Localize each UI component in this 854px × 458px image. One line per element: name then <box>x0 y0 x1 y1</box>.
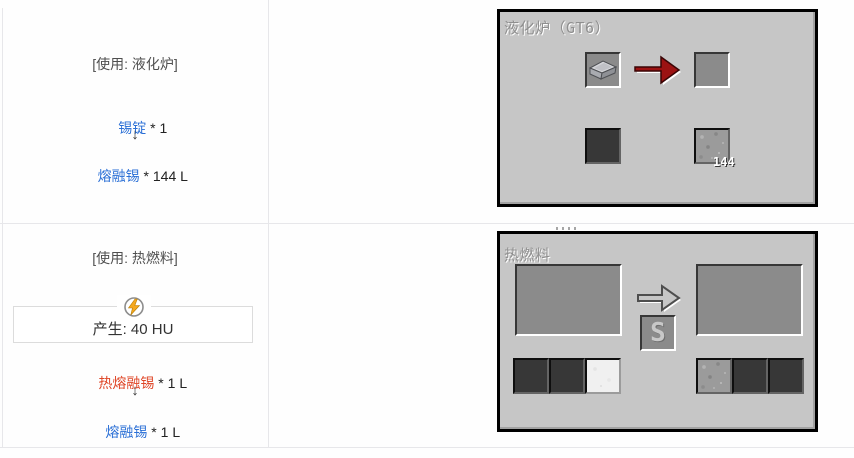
s-mode-icon: S <box>640 315 676 351</box>
fluid-amount-label: 144 <box>713 155 735 169</box>
lightning-icon <box>117 295 151 318</box>
input-item-slot <box>585 52 621 88</box>
clipped-pixels-decoration <box>556 227 580 230</box>
down-arrow-icon: ↓ <box>2 382 268 399</box>
input-slot-1 <box>513 358 549 394</box>
red-right-arrow-icon <box>634 55 682 85</box>
usage-label: [使用: 热燃料] <box>2 248 268 268</box>
output-fluid-link[interactable]: 熔融锡 <box>105 424 147 440</box>
input-slot-3 <box>585 358 621 394</box>
output-line: 熔融锡 * 1 L <box>2 406 268 458</box>
output-tank-display <box>696 264 803 336</box>
recipe-screenshot-hot-fuel[interactable]: 热燃料 S <box>497 231 818 432</box>
input-slot-2 <box>549 358 585 394</box>
input-tank-display <box>515 264 622 336</box>
down-arrow-icon: ↓ <box>2 126 268 143</box>
output-line: 熔融锡 * 144 L <box>2 150 268 202</box>
output-fluid-link[interactable]: 熔融锡 <box>98 168 140 184</box>
gui-title: 液化炉（GT6） <box>504 17 610 38</box>
recipe-screenshot-liquifier[interactable]: 液化炉（GT6） 144 <box>497 9 818 207</box>
usage-label: [使用: 液化炉] <box>2 54 268 74</box>
energy-output-label: 产生: 40 HU <box>14 318 252 339</box>
output-slot-2 <box>732 358 768 394</box>
output-amount: * 1 L <box>147 424 180 440</box>
tin-ingot-icon <box>588 59 618 81</box>
output-slot-3 <box>768 358 804 394</box>
output-amount: * 144 L <box>140 168 188 184</box>
output-slot-1 <box>696 358 732 394</box>
table-row-divider <box>0 223 854 224</box>
dark-tank-slot <box>585 128 621 164</box>
gray-right-arrow-icon <box>637 283 683 313</box>
gui-title: 热燃料 <box>504 244 551 265</box>
output-item-slot <box>694 52 730 88</box>
